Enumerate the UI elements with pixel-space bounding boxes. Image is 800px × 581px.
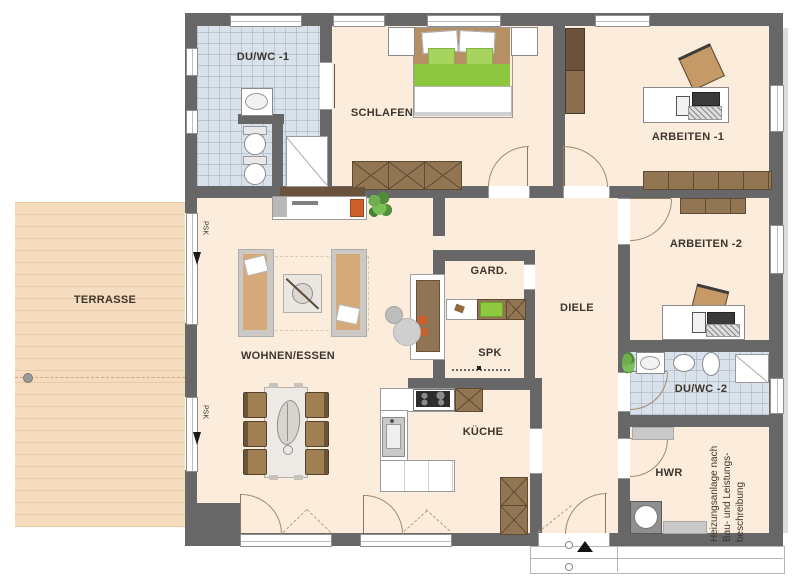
centerpiece-stem: [287, 403, 288, 441]
nightstand: [388, 27, 415, 56]
sliding-door-line: [334, 64, 335, 108]
door-opening: [488, 186, 530, 198]
wall: [618, 415, 783, 427]
room-label-arbeiten1: ARBEITEN -1: [652, 131, 724, 143]
window: [360, 534, 452, 547]
faucet: [390, 419, 394, 423]
wall: [524, 250, 535, 264]
nightstand: [511, 27, 538, 56]
psk-label: PSK: [202, 405, 209, 419]
window: [770, 85, 784, 132]
dining-chair: [305, 449, 329, 475]
terrace-door: [240, 534, 332, 547]
cabinet-row: [680, 198, 746, 214]
table-tab: [269, 383, 278, 388]
kitchen-cabinet: [500, 477, 528, 507]
centerpiece-dot: [283, 445, 293, 455]
door-opening: [618, 198, 630, 245]
toilet: [244, 133, 266, 155]
table-tab: [269, 475, 278, 480]
opening-arrow: [193, 432, 201, 445]
entrance-step-divider: [617, 546, 618, 572]
door-opening: [563, 186, 610, 198]
psk-label: PSK: [202, 221, 209, 235]
dining-chair: [243, 392, 267, 418]
dining-chair: [305, 392, 329, 418]
wardrobe: [352, 161, 390, 190]
entrance-opening: [538, 533, 610, 546]
heating-note-line: Heizungsanlage nach: [708, 432, 721, 542]
shelf: [632, 427, 674, 440]
door-opening: [320, 62, 332, 110]
room-label-hwr: HWR: [655, 467, 682, 479]
terrace-deck: [15, 202, 185, 527]
terrace-divider-line: [15, 377, 185, 378]
bench-cushion: [480, 302, 503, 317]
pc-tower: [692, 312, 706, 333]
stove-burners: [416, 391, 450, 407]
dining-chair: [243, 449, 267, 475]
monitor: [692, 92, 720, 106]
wall: [618, 243, 630, 352]
wall: [185, 323, 197, 397]
wall: [618, 340, 783, 352]
plant: [366, 191, 394, 219]
room-label-gard: GARD.: [471, 265, 508, 277]
wall: [618, 477, 630, 533]
survey-point: [565, 563, 573, 571]
boiler-drum: [634, 505, 658, 529]
island-item-orange: [418, 316, 427, 324]
terrace-post: [23, 373, 33, 383]
wall: [433, 198, 445, 236]
kitchen-sink-basin: [386, 424, 401, 449]
window: [595, 15, 650, 27]
window: [333, 15, 385, 27]
keyboard: [688, 106, 722, 120]
bidet: [702, 352, 720, 376]
window: [186, 110, 198, 134]
table-tab: [294, 475, 303, 480]
window: [186, 48, 198, 76]
sideboard-section: [273, 197, 287, 217]
wall: [530, 472, 542, 533]
plant: [622, 352, 635, 374]
heating-note: Heizungsanlage nach Bau- und Leistungs- …: [708, 432, 750, 542]
door-opening: [530, 428, 542, 474]
table-tab: [294, 383, 303, 388]
dining-chair: [243, 421, 267, 447]
room-label-kueche: KÜCHE: [463, 426, 504, 438]
heating-note-line: beschreibung: [734, 432, 747, 542]
room-label-wohnen: WOHNEN/ESSEN: [241, 350, 335, 362]
kitchen-cabinet: [455, 388, 483, 412]
kitchen-counter: [380, 460, 455, 492]
cabinet-row: [643, 171, 772, 190]
door-opening: [618, 438, 630, 479]
wall: [320, 26, 332, 62]
gard-cabinet: [506, 299, 526, 320]
toilet: [673, 354, 695, 372]
room-label-schlafen: SCHLAFEN: [351, 107, 413, 119]
opening-arrow: [193, 252, 201, 265]
wardrobe: [388, 161, 426, 190]
bidet: [244, 163, 266, 185]
kitchen-cabinet: [500, 505, 528, 535]
keyboard: [706, 324, 740, 337]
window: [427, 15, 501, 27]
bed-sheet: [414, 86, 512, 116]
sliding-door-psk: [186, 213, 198, 325]
sideboard-item-orange: [350, 199, 364, 217]
room-label-arbeiten2: ARBEITEN -2: [670, 238, 742, 250]
door-opening: [618, 372, 630, 412]
room-label-duwc2: DU/WC -2: [675, 383, 728, 395]
entrance-marker: [577, 541, 593, 552]
wall: [433, 250, 535, 261]
pantry-dot: [477, 366, 481, 370]
room-label-spk: SPK: [478, 347, 502, 359]
room-label-duwc1: DU/WC -1: [237, 51, 290, 63]
dining-chair: [305, 421, 329, 447]
door-opening: [524, 264, 535, 290]
wall-cabinet: [280, 187, 365, 196]
window: [230, 15, 302, 27]
wall: [185, 503, 240, 545]
room-label-terrasse: TERRASSE: [74, 294, 136, 306]
survey-point: [565, 541, 573, 549]
shelf: [663, 521, 707, 534]
window: [770, 225, 784, 274]
heating-note-line: Bau- und Leistungs-: [721, 432, 734, 542]
wardrobe: [424, 161, 462, 190]
tall-cabinet: [565, 28, 585, 72]
floor-plan: DU/WC -1 SCHLAFEN ARBEITEN -1 ARBEITEN -…: [0, 0, 800, 581]
sink-basin: [640, 356, 660, 370]
wall: [272, 124, 283, 186]
window: [770, 378, 784, 414]
bed-blanket: [414, 64, 510, 86]
wall: [530, 390, 542, 428]
sideboard-item: [292, 201, 318, 205]
sink-basin: [245, 93, 268, 110]
room-label-diele: DIELE: [560, 302, 594, 314]
floor-lamp-base: [385, 306, 403, 324]
entrance-step-line: [530, 558, 783, 559]
pantry-shelf-line: [452, 369, 510, 371]
tall-cabinet: [565, 70, 585, 114]
